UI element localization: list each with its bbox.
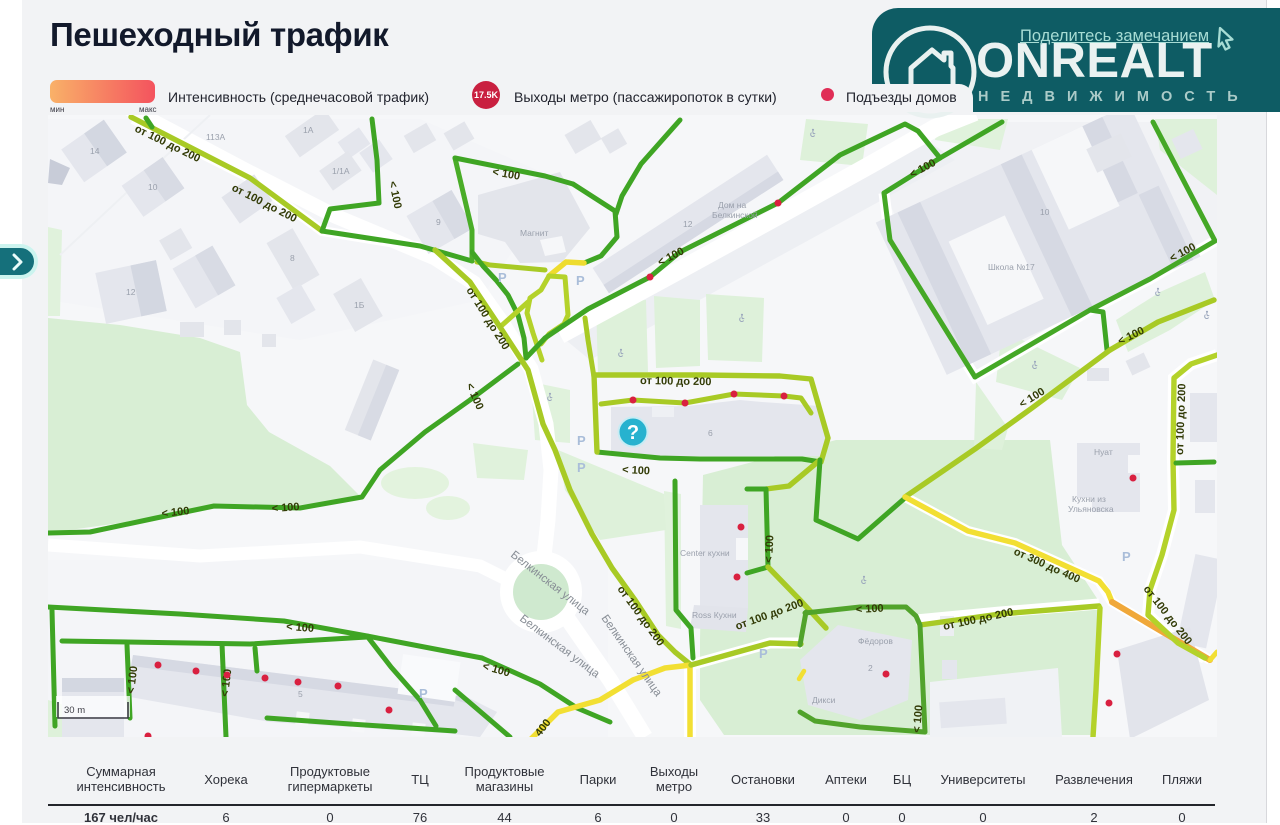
svg-text:< 100: < 100 xyxy=(911,704,925,733)
svg-text:1/1А: 1/1А xyxy=(332,166,350,176)
svg-text:1А: 1А xyxy=(303,125,314,135)
svg-text:?: ? xyxy=(627,422,639,444)
svg-text:30 m: 30 m xyxy=(64,705,85,716)
svg-text:8: 8 xyxy=(290,253,295,263)
svg-text:Белкинской: Белкинской xyxy=(712,210,758,220)
svg-text:Кухни из: Кухни из xyxy=(1072,494,1106,504)
svg-text:5: 5 xyxy=(298,689,303,699)
svg-text:Нуат: Нуат xyxy=(1094,447,1113,457)
svg-text:Школа №17: Школа №17 xyxy=(988,262,1035,272)
svg-text:P: P xyxy=(759,646,768,661)
svg-text:1Б: 1Б xyxy=(354,300,365,310)
svg-text:14: 14 xyxy=(90,146,100,156)
svg-text:Ульяновска: Ульяновска xyxy=(1068,504,1114,514)
svg-text:Дикси: Дикси xyxy=(812,695,836,705)
svg-text:P: P xyxy=(576,273,585,288)
svg-text:P: P xyxy=(577,460,586,475)
svg-text:Фёдоров: Фёдоров xyxy=(858,636,893,646)
svg-text:от 100 до 200: от 100 до 200 xyxy=(640,375,712,388)
svg-text:< 100: < 100 xyxy=(856,603,884,616)
svg-text:< 100: < 100 xyxy=(622,464,650,477)
svg-text:113А: 113А xyxy=(206,132,226,142)
svg-text:12: 12 xyxy=(126,287,136,297)
svg-text:Дом на: Дом на xyxy=(718,200,746,210)
svg-text:Магнит: Магнит xyxy=(520,228,548,238)
svg-text:< 100: < 100 xyxy=(763,535,776,563)
svg-text:< 100: < 100 xyxy=(286,621,315,635)
svg-text:< 100: < 100 xyxy=(271,501,300,515)
svg-text:2: 2 xyxy=(868,663,873,673)
svg-text:Center кухни: Center кухни xyxy=(680,548,730,558)
svg-text:P: P xyxy=(498,270,507,285)
svg-text:Ross Кухни: Ross Кухни xyxy=(692,610,737,620)
svg-text:P: P xyxy=(1122,549,1131,564)
svg-text:10: 10 xyxy=(1040,207,1050,217)
svg-text:P: P xyxy=(577,433,586,448)
svg-text:9: 9 xyxy=(436,217,441,227)
svg-text:12: 12 xyxy=(683,219,693,229)
svg-text:10: 10 xyxy=(148,182,158,192)
svg-text:от 100 до 200: от 100 до 200 xyxy=(1174,383,1188,455)
svg-text:P: P xyxy=(419,686,428,701)
svg-text:6: 6 xyxy=(708,428,713,438)
